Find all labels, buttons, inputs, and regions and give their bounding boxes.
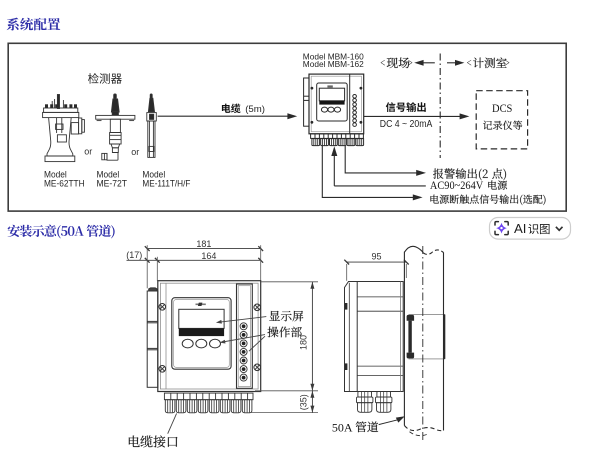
svg-text:ME-72T: ME-72T xyxy=(97,178,128,188)
svg-text:ME-111T/H/F: ME-111T/H/F xyxy=(142,178,191,188)
svg-text:95: 95 xyxy=(371,252,381,262)
svg-text:DC 4 ~ 20mA: DC 4 ~ 20mA xyxy=(380,119,433,130)
svg-text:181: 181 xyxy=(196,239,211,249)
svg-text:or: or xyxy=(131,147,139,157)
svg-text:ME-62TTH: ME-62TTH xyxy=(44,178,85,188)
svg-text:AC90~264V: AC90~264V xyxy=(430,179,484,192)
svg-text:(17): (17) xyxy=(126,250,142,260)
svg-text:50A: 50A xyxy=(332,420,353,434)
svg-text:(35): (35) xyxy=(299,394,309,410)
svg-text:AI: AI xyxy=(514,221,526,236)
svg-text:or: or xyxy=(84,147,92,157)
svg-text:180: 180 xyxy=(299,335,309,350)
svg-text:DCS: DCS xyxy=(492,102,512,115)
svg-text:<: < xyxy=(380,58,385,70)
svg-text:164: 164 xyxy=(201,251,216,261)
svg-text:>: > xyxy=(408,58,413,70)
svg-text:Model MBM-162: Model MBM-162 xyxy=(303,59,364,69)
svg-text:(5m): (5m) xyxy=(245,104,265,115)
svg-text:<: < xyxy=(467,58,472,70)
svg-text:>: > xyxy=(505,58,510,70)
